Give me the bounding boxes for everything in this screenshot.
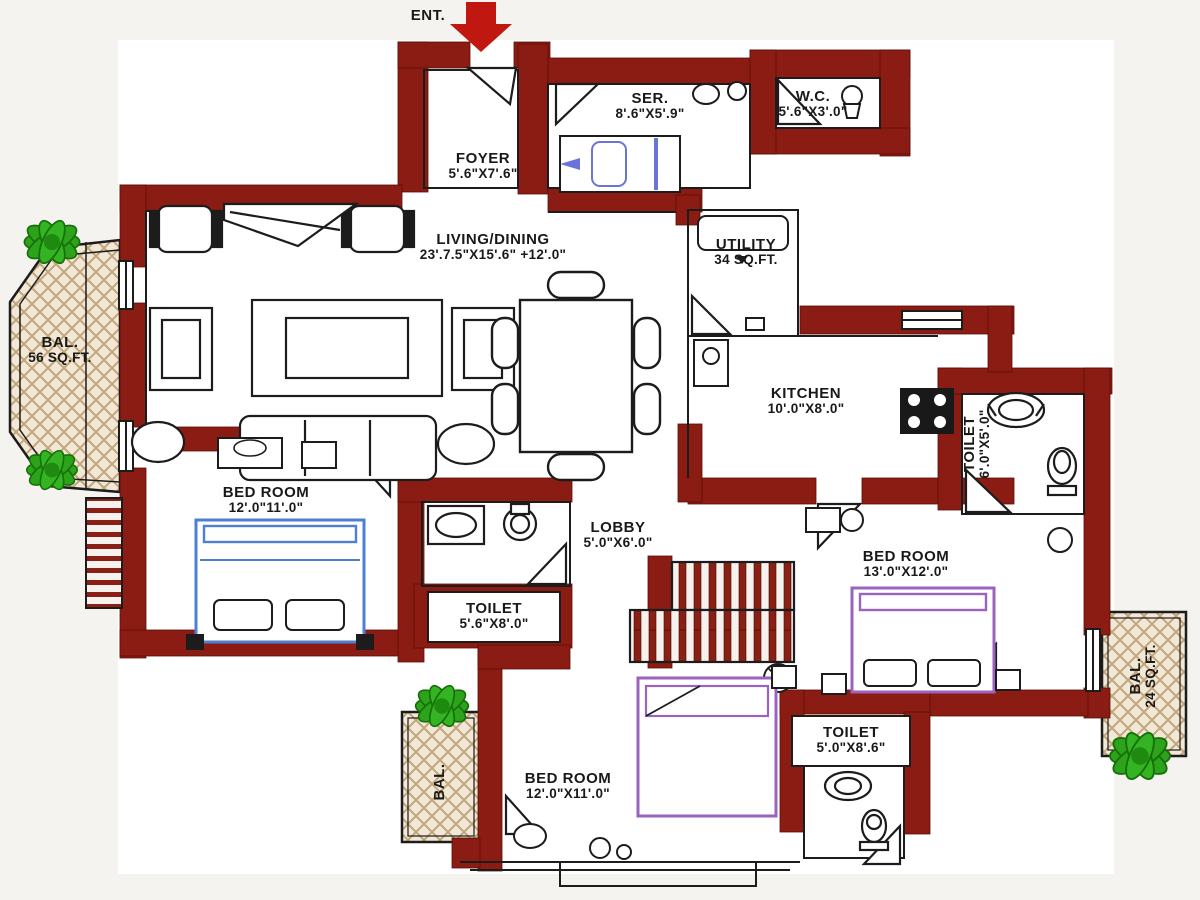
balcony-bottom-left-area	[402, 712, 480, 842]
stove-icon	[900, 388, 954, 434]
balcony-left-area	[10, 240, 120, 492]
floor-plan-drawing	[0, 0, 1200, 900]
left-ledge	[86, 498, 122, 608]
ser-bed	[560, 136, 680, 192]
floor-plan: ENT. FOYER 5'.6"X7'.6" SER. 8'.6"X5'.9" …	[0, 0, 1200, 900]
toilet-mid-fixtures	[428, 504, 536, 544]
